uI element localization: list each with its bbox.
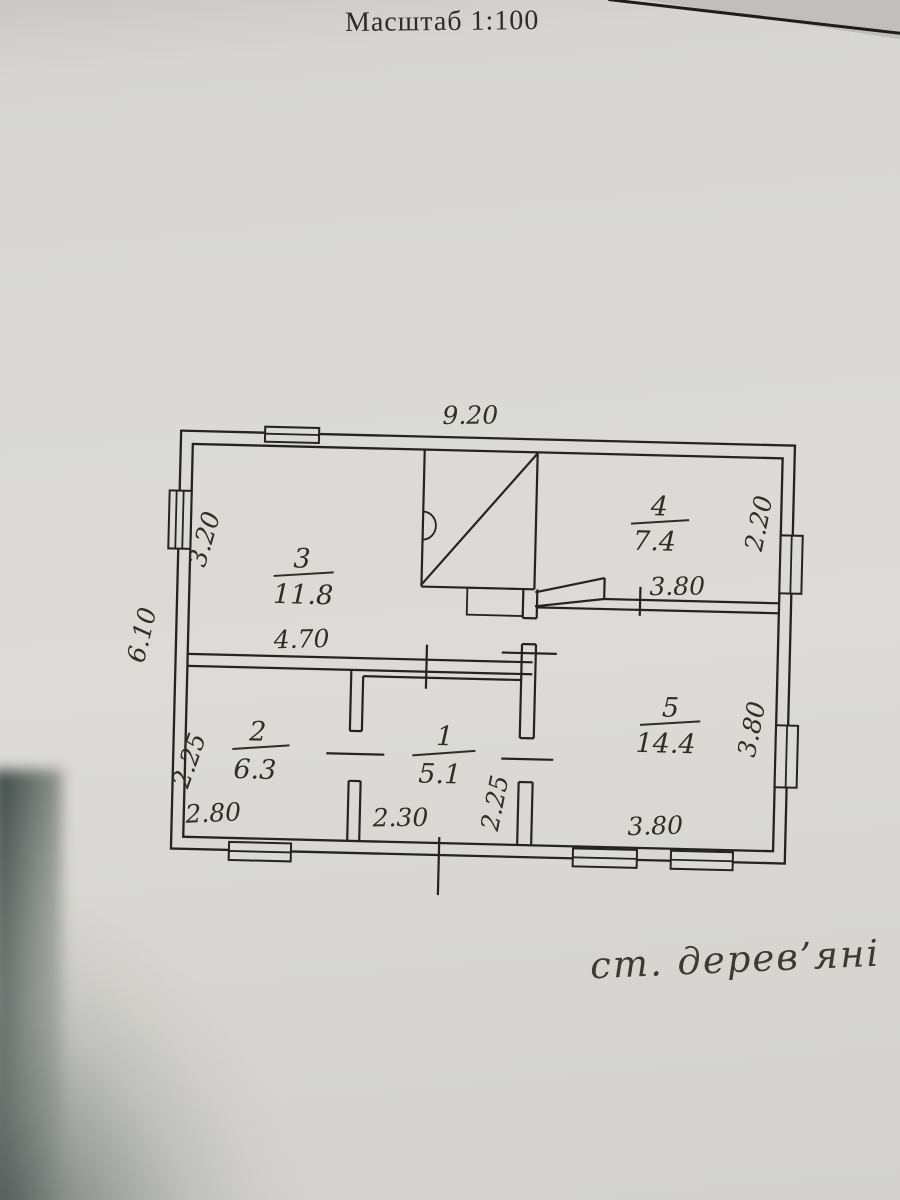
dim-room1-right: 2.25 bbox=[475, 773, 515, 834]
dim-left-height: 6.10 bbox=[121, 604, 162, 665]
svg-text:7.4: 7.4 bbox=[633, 526, 677, 558]
vestibule bbox=[421, 450, 538, 617]
room-2-label: 2 6.3 bbox=[232, 716, 291, 786]
dim-room1-bottom: 2.30 bbox=[371, 803, 428, 833]
dim-top-width: 9.20 bbox=[442, 400, 498, 430]
stove-box bbox=[467, 588, 524, 616]
svg-text:14.4: 14.4 bbox=[635, 728, 696, 760]
svg-text:5: 5 bbox=[662, 692, 680, 723]
floor-plan-drawing: 9.20 6.10 3.20 4.70 2.20 3.80 3.80 3.80 … bbox=[0, 0, 900, 1200]
dim-room5-right: 3.80 bbox=[732, 699, 771, 759]
dim-room2-bottom: 2.80 bbox=[184, 797, 242, 829]
svg-text:5.1: 5.1 bbox=[418, 759, 462, 791]
window-right-upper bbox=[779, 535, 802, 594]
room-4-label: 4 7.4 bbox=[630, 491, 690, 558]
door-arc bbox=[423, 512, 437, 540]
room-3-label: 3 11.8 bbox=[273, 543, 335, 611]
svg-text:6.3: 6.3 bbox=[233, 754, 277, 786]
window-bottom-right bbox=[671, 851, 733, 871]
window-right-lower bbox=[775, 725, 799, 788]
room-1-label: 1 5.1 bbox=[411, 720, 476, 791]
window-top bbox=[265, 427, 319, 443]
svg-text:1: 1 bbox=[436, 721, 454, 752]
scanned-photo: Масштаб 1:100 bbox=[0, 0, 900, 1200]
dim-room4-right: 2.20 bbox=[739, 493, 779, 554]
svg-text:2: 2 bbox=[248, 716, 267, 747]
window-bottom-middle bbox=[573, 848, 637, 868]
svg-text:3: 3 bbox=[293, 543, 311, 574]
dim-room5-bottom: 3.80 bbox=[627, 811, 684, 842]
svg-text:11.8: 11.8 bbox=[273, 579, 334, 611]
svg-text:4: 4 bbox=[649, 491, 668, 522]
room-5-label: 5 14.4 bbox=[635, 692, 701, 761]
dim-room4-bottom: 3.80 bbox=[649, 572, 705, 602]
scale-title: Масштаб 1:100 bbox=[345, 5, 540, 39]
window-bottom-left bbox=[229, 842, 291, 862]
dim-room3-bottom: 4.70 bbox=[272, 624, 330, 655]
